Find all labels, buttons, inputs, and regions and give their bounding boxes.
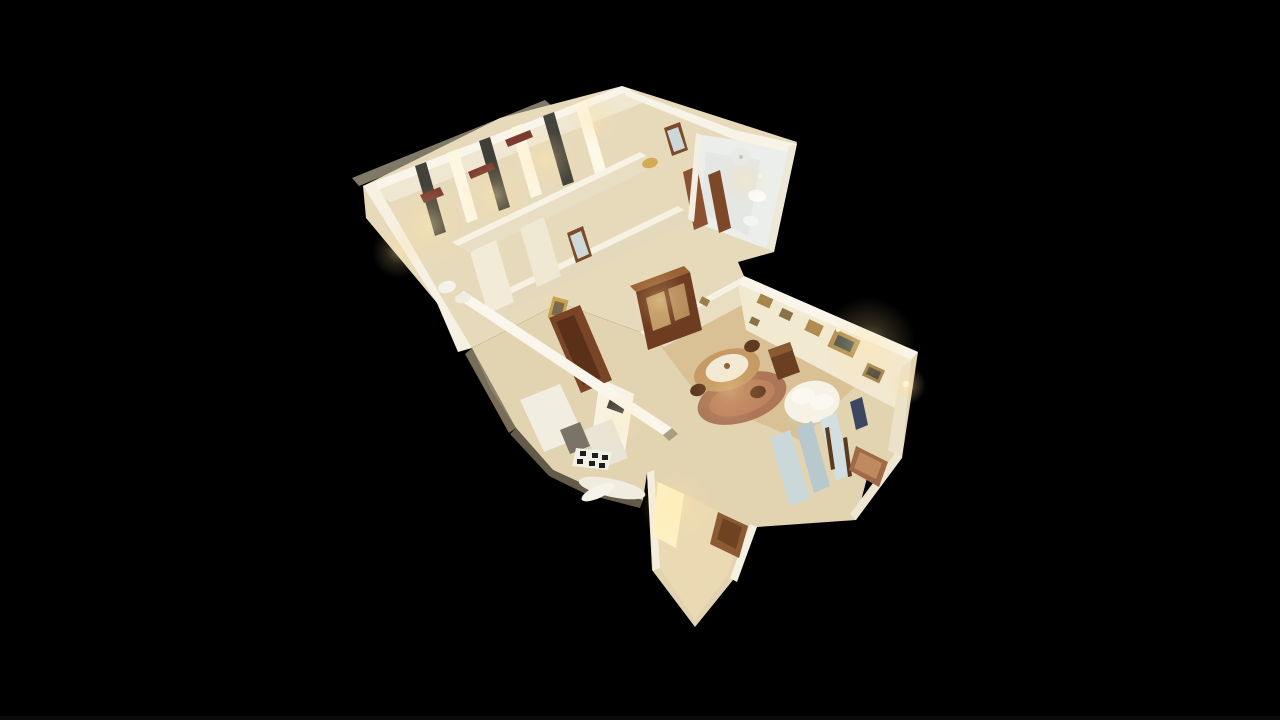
terrace-glow <box>372 226 424 278</box>
scan-marker-cell-2 <box>592 453 598 458</box>
vestibule-glow <box>640 467 716 543</box>
hall-glow <box>630 270 690 330</box>
lamp-dot-2 <box>836 328 840 332</box>
window-glow-4 <box>566 92 618 144</box>
lamp-dot-1 <box>903 381 909 387</box>
dining-glow <box>694 354 766 426</box>
window-glow-3 <box>515 130 575 190</box>
kitchen-glow <box>590 390 650 450</box>
scan-marker-cell-6 <box>599 463 605 468</box>
scan-marker-cell-4 <box>577 459 583 464</box>
bottom-edge-bar <box>0 716 1280 720</box>
bathroom-glow <box>719 154 771 206</box>
scan-marker-cell-5 <box>589 461 595 466</box>
dollhouse-model-canvas[interactable] <box>0 0 1280 720</box>
scan-marker-cell-1 <box>580 451 586 456</box>
scan-marker-cell-3 <box>602 455 608 460</box>
lamp-dot-3 <box>758 174 762 178</box>
3d-tour-viewport[interactable] <box>0 0 1280 720</box>
